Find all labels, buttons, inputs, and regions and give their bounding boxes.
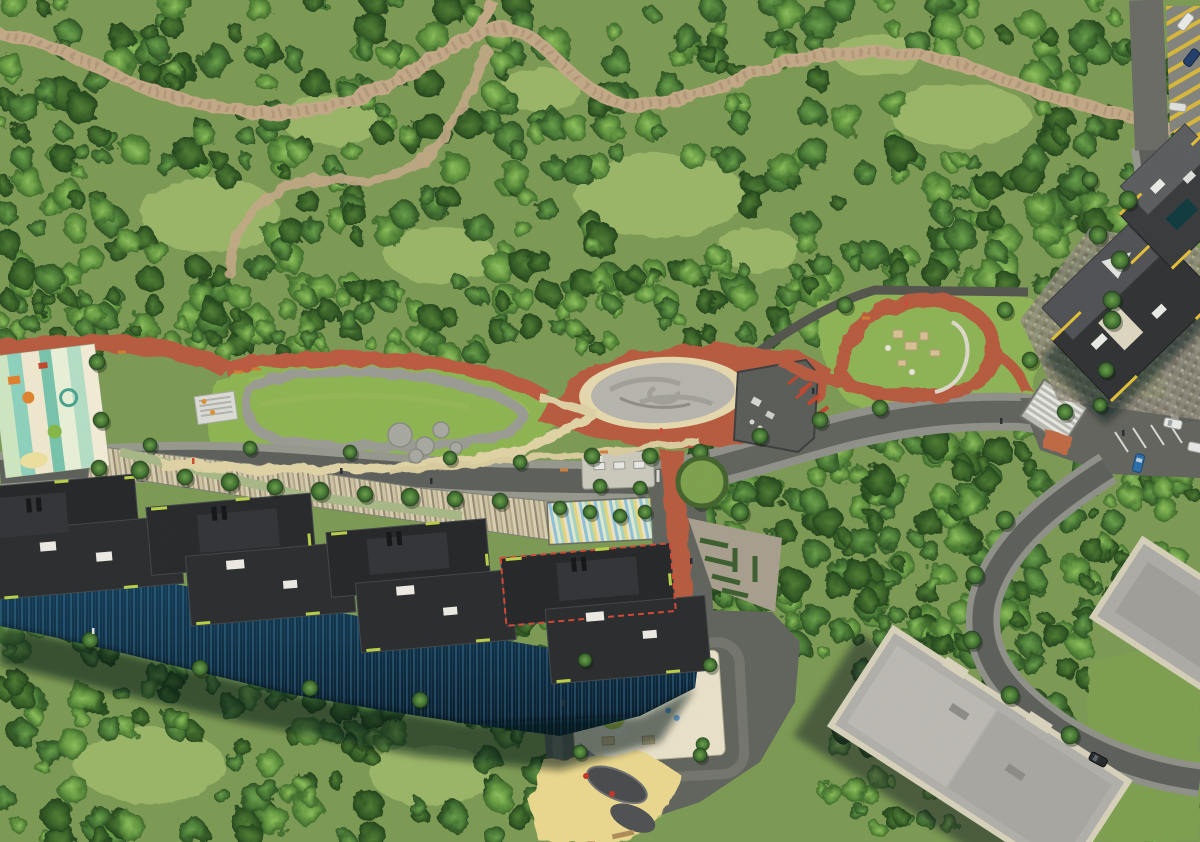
site-plan-svg: Aerial masterplan rendering: residential…	[0, 0, 1200, 842]
render-grain	[0, 0, 1200, 842]
aerial-masterplan-render: Aerial masterplan rendering: residential…	[0, 0, 1200, 842]
